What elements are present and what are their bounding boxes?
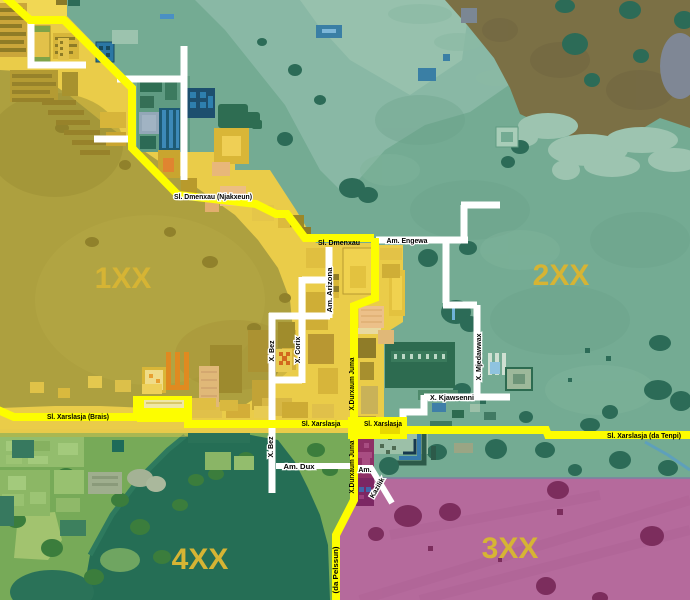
svg-text:Am. Dux: Am. Dux [284,464,315,471]
svg-text:X.Durxaum Juma: X.Durxaum Juma [349,440,356,493]
svg-text:(da Pelssun): (da Pelssun) [333,547,340,594]
svg-text:X.Durxaum Juma: X.Durxaum Juma [349,357,356,410]
svg-text:4XX: 4XX [172,543,229,576]
svg-text:X. Mjedawwax: X. Mjedawwax [476,333,483,380]
svg-text:Am.: Am. [358,467,371,474]
svg-text:Sl. Xarslasja: Sl. Xarslasja [364,421,402,428]
svg-text:Am. Arizona: Am. Arizona [327,267,334,312]
svg-text:Sl. Xarslasja (Brais): Sl. Xarslasja (Brais) [47,414,109,421]
svg-text:Am. Engewa: Am. Engewa [387,238,428,245]
svg-text:Sl. Xarslasja: Sl. Xarslasja [302,421,341,428]
svg-text:1XX: 1XX [95,262,152,295]
svg-text:Sl. Dmenxau: Sl. Dmenxau [318,240,360,247]
svg-text:2XX: 2XX [533,259,590,292]
svg-text:Sl. Dmenxau (Njakxeun): Sl. Dmenxau (Njakxeun) [174,194,252,201]
svg-text:X. Bez: X. Bez [268,436,275,458]
svg-text:Sl. Xarslasja (da Tenpi): Sl. Xarslasja (da Tenpi) [607,433,681,440]
svg-text:X. Corix: X. Corix [295,337,302,364]
svg-text:3XX: 3XX [482,532,539,565]
svg-text:X. Bez: X. Bez [269,340,276,362]
svg-text:X. Kjawsenni: X. Kjawsenni [430,395,474,402]
